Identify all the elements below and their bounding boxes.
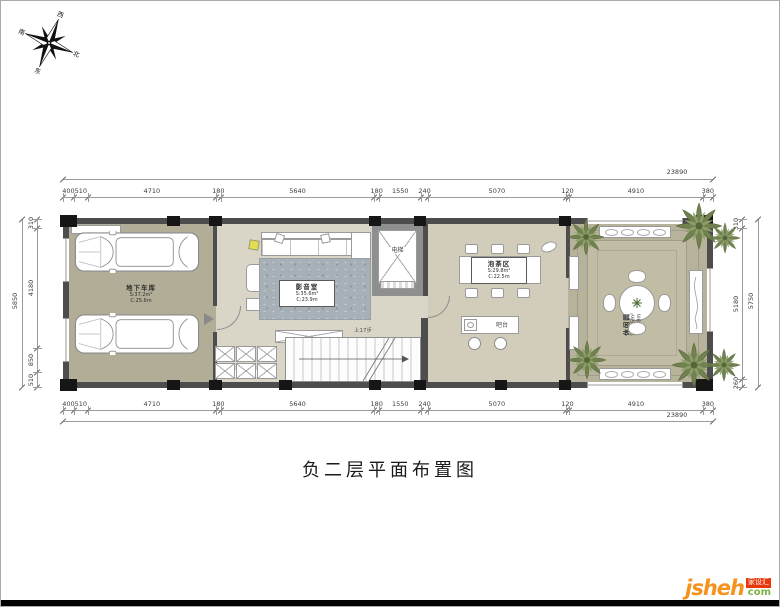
dim-label: 240 xyxy=(418,401,430,408)
bar-sink-bowl xyxy=(467,322,474,328)
side-table xyxy=(246,298,260,311)
storage-cell xyxy=(257,363,277,379)
watermark: jsheh 家设汇 com xyxy=(685,578,771,598)
garden-chair xyxy=(628,270,646,283)
tea-chair xyxy=(491,244,504,254)
dim-line xyxy=(742,219,743,387)
dim-tick xyxy=(563,407,569,413)
storage-cell xyxy=(215,346,235,362)
compass-north-label: 北 xyxy=(72,49,81,59)
dim-line xyxy=(63,421,713,422)
garden-bench xyxy=(599,368,671,380)
dim-label: 5070 xyxy=(489,401,506,408)
dim-tick xyxy=(60,418,66,424)
storage-cell xyxy=(257,346,277,362)
dim-tick xyxy=(710,418,716,424)
cushion xyxy=(621,371,634,378)
sofa-pillow xyxy=(320,233,331,244)
column xyxy=(414,216,426,226)
garden-bench xyxy=(599,226,671,238)
dim-label: 23890 xyxy=(667,169,688,176)
dim-tick xyxy=(371,194,377,200)
dim-tick xyxy=(213,407,219,413)
window xyxy=(587,382,683,388)
dim-label: 120 xyxy=(561,401,573,408)
plant-icon xyxy=(567,340,607,380)
dim-line xyxy=(88,406,89,415)
column xyxy=(209,380,222,390)
dim-label: 23890 xyxy=(667,412,688,419)
elevator-label: 电梯 xyxy=(385,247,410,254)
dim-tick xyxy=(71,194,77,200)
dim-tick xyxy=(60,407,66,413)
dim-label: 380 xyxy=(702,401,714,408)
dim-label: 180 xyxy=(212,188,224,195)
media-room-label: 影音室 S:35.6m² C:23.9m xyxy=(279,280,335,307)
column xyxy=(167,380,180,390)
dim-label: 5750 xyxy=(748,293,755,310)
cushion xyxy=(605,229,618,236)
dim-tick xyxy=(218,194,224,200)
dim-label: 1550 xyxy=(392,401,409,408)
plant-icon xyxy=(707,348,741,382)
cushion xyxy=(621,229,634,236)
bottom-bar xyxy=(1,600,779,606)
dim-label: 4710 xyxy=(144,188,161,195)
dim-tick xyxy=(34,384,40,390)
floorplan-sheet: 西 北 东 南 23890400510471018056401801550240… xyxy=(0,0,780,607)
watermark-right: 家设汇 com xyxy=(746,578,771,598)
dim-label: 180 xyxy=(370,188,382,195)
dim-tick xyxy=(699,194,705,200)
dim-tick xyxy=(60,194,66,200)
wall-garage-media xyxy=(213,224,217,306)
stairs xyxy=(285,337,421,382)
dim-tick xyxy=(34,216,40,222)
garage-label: 地下车库 S:37.2m² C:25.6m xyxy=(101,284,181,305)
garden-chair xyxy=(628,322,646,335)
dim-line xyxy=(88,193,89,202)
dim-label: 510 xyxy=(75,401,87,408)
dim-line xyxy=(216,193,217,202)
dim-label: 5180 xyxy=(733,295,740,312)
dim-tick xyxy=(418,407,424,413)
dim-label: 240 xyxy=(418,188,430,195)
bar-stool xyxy=(494,337,507,350)
dim-line xyxy=(566,406,567,415)
dim-tick xyxy=(755,384,761,390)
dim-tick xyxy=(710,176,716,182)
dim-line xyxy=(33,387,42,388)
watermark-suffix: com xyxy=(746,588,771,598)
dim-tick xyxy=(376,407,382,413)
dim-label: 5070 xyxy=(489,188,506,195)
dim-line xyxy=(379,193,380,202)
dim-line xyxy=(566,193,567,202)
dim-line xyxy=(63,406,64,415)
compass-east-label: 东 xyxy=(33,65,43,76)
cushion xyxy=(637,371,650,378)
dim-label: 5640 xyxy=(289,401,306,408)
dim-label: 850 xyxy=(28,354,35,366)
tea-chair xyxy=(517,244,530,254)
dim-line xyxy=(74,406,75,415)
elevator-door xyxy=(380,281,415,289)
dim-line xyxy=(738,387,747,388)
garden-cabinet xyxy=(689,270,703,334)
window xyxy=(63,238,69,282)
dim-label: 510 xyxy=(75,188,87,195)
dim-tick xyxy=(563,194,569,200)
dim-line xyxy=(63,410,713,411)
column xyxy=(369,380,381,390)
dim-tick xyxy=(376,194,382,200)
dim-tick xyxy=(34,345,40,351)
dim-line xyxy=(703,193,704,202)
dim-tick xyxy=(418,194,424,200)
column xyxy=(167,216,180,226)
dim-line xyxy=(421,193,422,202)
dim-label: 400 xyxy=(62,401,74,408)
storage-cell xyxy=(236,346,256,362)
watermark-logo: jsheh xyxy=(685,578,744,598)
column xyxy=(60,379,77,391)
dim-line xyxy=(37,219,38,387)
bar-label: 吧台 xyxy=(487,322,517,329)
wall-corridor-tea xyxy=(421,318,428,382)
column xyxy=(414,380,426,390)
plant-icon xyxy=(709,222,741,254)
dim-tick xyxy=(710,194,716,200)
garden-shelf xyxy=(569,256,579,290)
stairs-note: 上17步 xyxy=(341,328,385,335)
dim-label: 510 xyxy=(28,373,35,385)
dim-tick xyxy=(566,407,572,413)
compass-west-label: 西 xyxy=(56,10,65,20)
dim-line xyxy=(428,193,429,202)
column xyxy=(369,216,381,226)
dim-tick xyxy=(85,407,91,413)
dim-label: 180 xyxy=(212,401,224,408)
garden-chair xyxy=(658,294,671,312)
dim-line xyxy=(216,406,217,415)
dim-line xyxy=(758,219,759,387)
dim-tick xyxy=(218,407,224,413)
dim-tick xyxy=(739,384,745,390)
tea-chair xyxy=(517,288,530,298)
dim-line xyxy=(221,406,222,415)
dim-label: 120 xyxy=(561,188,573,195)
dim-label: 5850 xyxy=(12,293,19,310)
dim-tick xyxy=(19,216,25,222)
dim-tick xyxy=(755,216,761,222)
tea-chair xyxy=(465,244,478,254)
dim-label: 4910 xyxy=(628,401,645,408)
dim-label: 5640 xyxy=(289,188,306,195)
cabinet-scroll xyxy=(690,271,702,333)
dim-tick xyxy=(85,194,91,200)
tea-area-label: 泡茶区 S:29.8m² C:22.5m xyxy=(471,257,527,284)
dim-tick xyxy=(71,407,77,413)
dim-label: 1550 xyxy=(392,188,409,195)
dim-line xyxy=(63,193,64,202)
dim-tick xyxy=(425,407,431,413)
dim-label: 4180 xyxy=(28,280,35,297)
dim-tick xyxy=(699,407,705,413)
dim-line xyxy=(63,197,713,198)
dim-tick xyxy=(60,176,66,182)
column xyxy=(495,380,507,390)
sheet-title: 负二层平面布置图 xyxy=(1,456,779,482)
dim-label: 310 xyxy=(28,217,35,229)
dim-tick xyxy=(710,407,716,413)
dim-tick xyxy=(371,407,377,413)
dim-line xyxy=(221,193,222,202)
column xyxy=(559,380,571,390)
floor-plan: 地下车库 S:37.2m² C:25.6m 影音室 S:35.6m² C:23.… xyxy=(63,218,713,388)
dim-line xyxy=(74,193,75,202)
compass-south-label: 南 xyxy=(17,26,27,37)
column xyxy=(209,216,222,226)
cushion xyxy=(637,229,650,236)
window xyxy=(707,268,713,332)
dim-line xyxy=(22,219,23,387)
storage-cell xyxy=(215,363,235,379)
garden-chair xyxy=(603,294,616,312)
dim-line xyxy=(63,179,713,180)
dim-line xyxy=(703,406,704,415)
elevator-car xyxy=(378,230,417,284)
dim-tick xyxy=(425,194,431,200)
dim-line xyxy=(569,193,570,202)
cushion xyxy=(653,371,666,378)
bar-stool xyxy=(468,337,481,350)
speaker xyxy=(248,239,260,251)
car-icon xyxy=(73,231,201,273)
dim-tick xyxy=(34,370,40,376)
dim-line xyxy=(374,406,375,415)
plant-icon xyxy=(567,218,605,256)
storage-cell xyxy=(236,363,256,379)
dim-tick xyxy=(566,194,572,200)
dim-line xyxy=(713,406,714,415)
dim-line xyxy=(374,193,375,202)
dim-label: 4710 xyxy=(144,401,161,408)
compass-rose: 西 北 东 南 xyxy=(5,0,94,87)
dim-tick xyxy=(213,194,219,200)
window xyxy=(63,318,69,362)
dim-label: 4910 xyxy=(628,188,645,195)
dim-line xyxy=(33,348,42,349)
cushion xyxy=(653,229,666,236)
dim-label: 180 xyxy=(370,401,382,408)
car-icon xyxy=(73,313,201,355)
dim-label: 380 xyxy=(702,188,714,195)
dim-line xyxy=(428,406,429,415)
dim-line xyxy=(421,406,422,415)
dim-line xyxy=(33,228,42,229)
dim-tick xyxy=(34,225,40,231)
dim-line xyxy=(379,406,380,415)
dim-line xyxy=(33,372,42,373)
column xyxy=(60,215,77,227)
dim-line xyxy=(33,219,42,220)
tea-chair xyxy=(465,288,478,298)
tea-chair xyxy=(491,288,504,298)
column xyxy=(279,380,292,390)
dim-line xyxy=(713,193,714,202)
dim-line xyxy=(738,219,747,220)
dim-label: 400 xyxy=(62,188,74,195)
dim-tick xyxy=(19,384,25,390)
dim-line xyxy=(569,406,570,415)
garage-door-arrow-icon xyxy=(204,313,214,325)
